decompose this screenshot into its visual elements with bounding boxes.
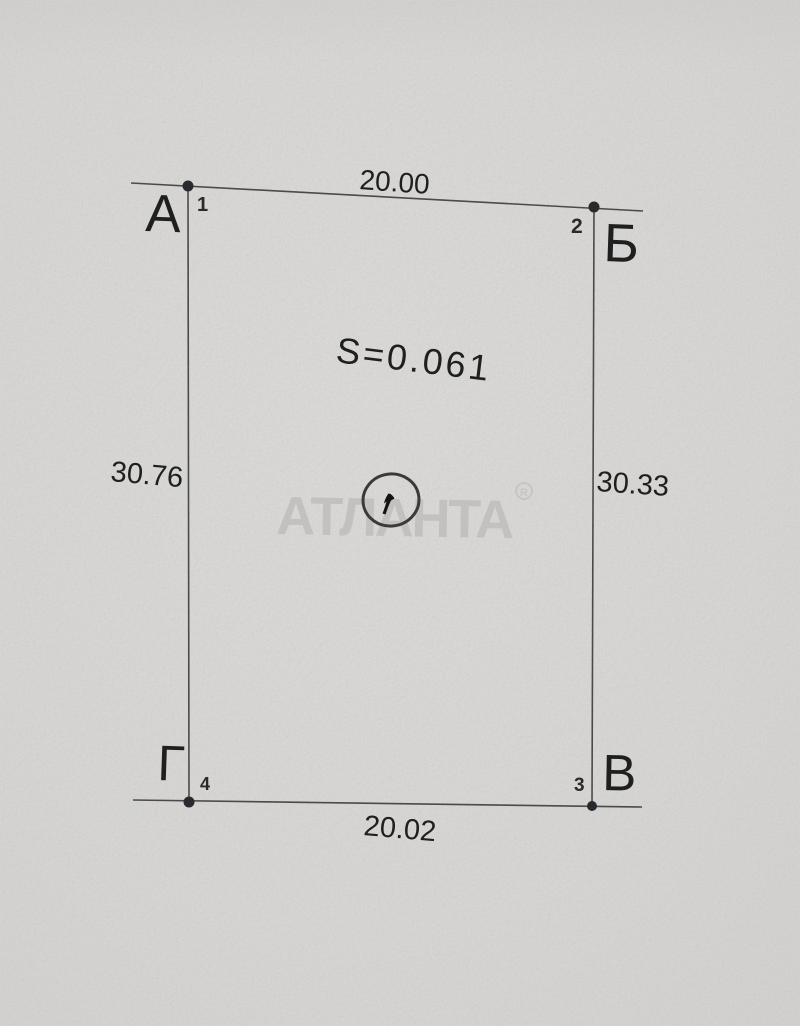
svg-text:30.33: 30.33 (596, 466, 671, 503)
svg-text:3: 3 (574, 775, 585, 796)
svg-text:2: 2 (571, 215, 583, 238)
svg-text:Г: Г (157, 735, 186, 792)
svg-text:АТЛАНТА: АТЛАНТА (276, 486, 515, 550)
svg-text:30.76: 30.76 (109, 456, 184, 494)
svg-text:Б: Б (603, 213, 641, 274)
svg-text:1: 1 (197, 194, 208, 216)
svg-text:А: А (145, 184, 183, 244)
svg-text:20.00: 20.00 (359, 164, 431, 200)
svg-text:4: 4 (200, 774, 210, 794)
svg-text:R: R (520, 487, 528, 499)
svg-text:В: В (602, 744, 637, 802)
svg-text:20.02: 20.02 (362, 810, 437, 848)
